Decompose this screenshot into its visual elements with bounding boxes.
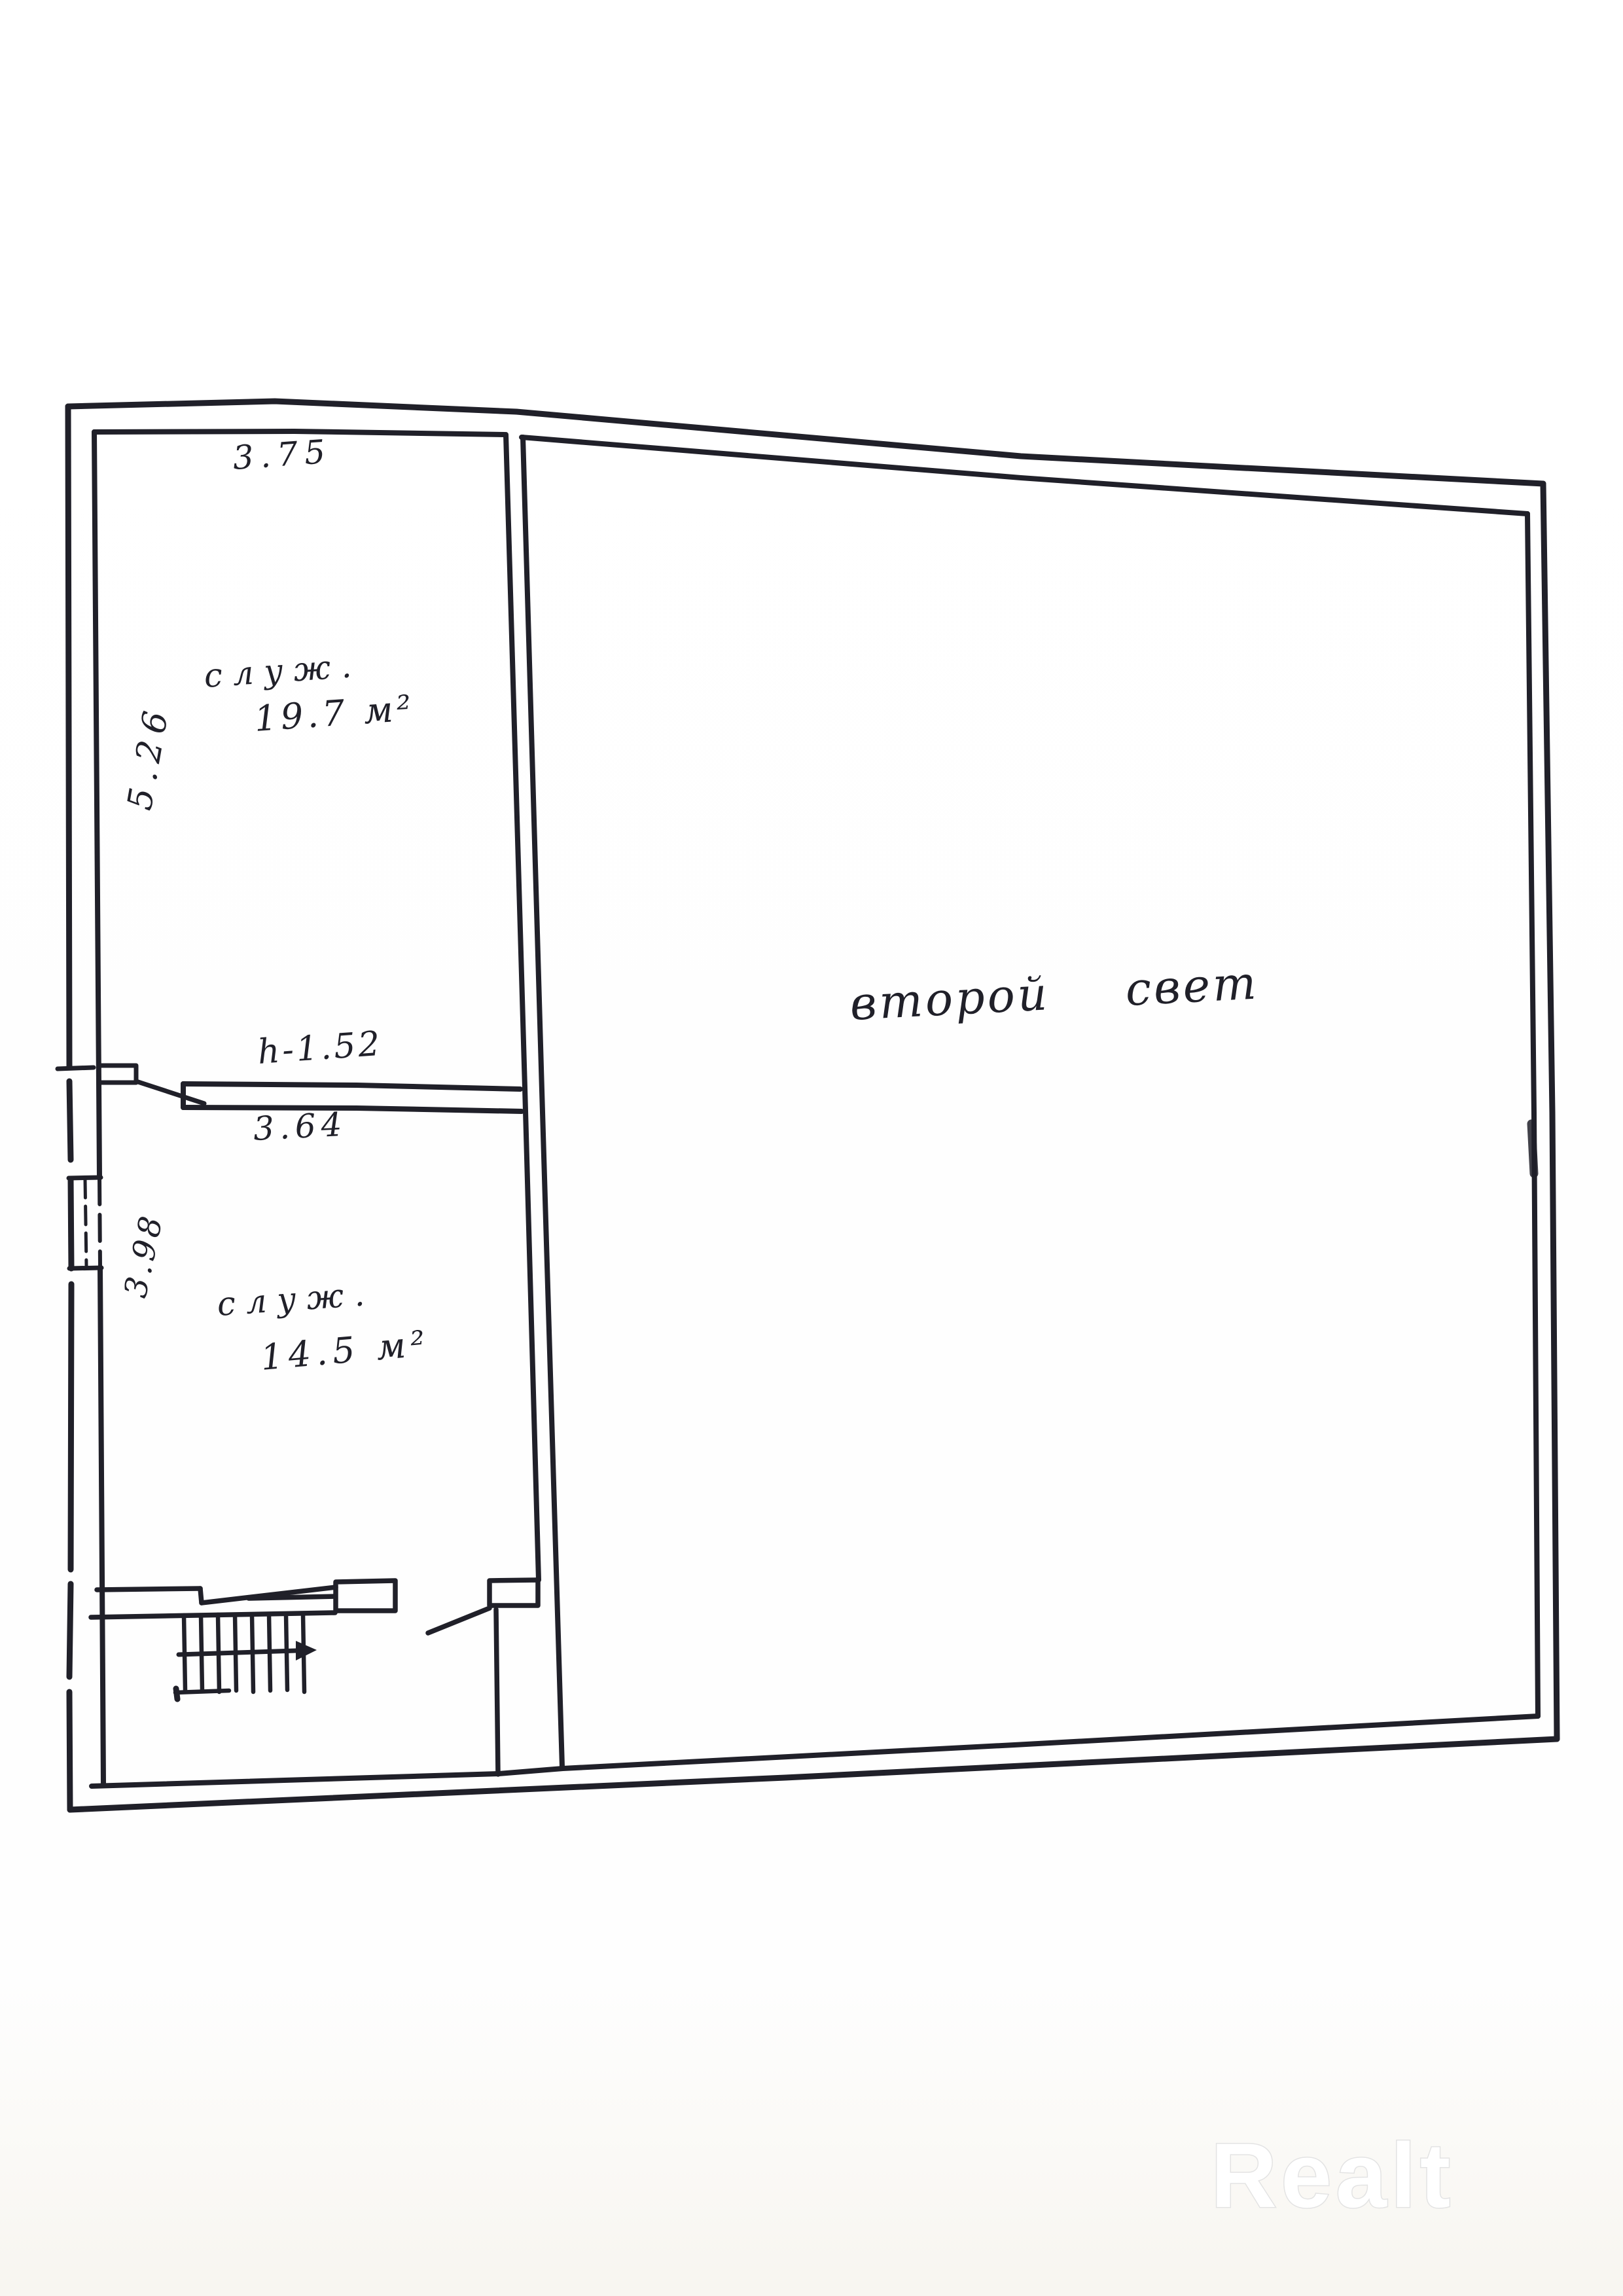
outer-top-left-room — [68, 401, 516, 412]
dim-lower-room-depth: 3.98 — [117, 1210, 171, 1301]
wall-below-door — [496, 1609, 498, 1774]
room-upper-area: 19.7 м² — [253, 687, 417, 740]
room-upper-name: служ. — [203, 646, 363, 695]
stair-wall-bottom — [91, 1613, 335, 1617]
outer-bottom-wall — [70, 1739, 1557, 1810]
arrow-head — [296, 1641, 317, 1660]
hall-name: второй свет — [849, 956, 1260, 1031]
staircase — [91, 1580, 538, 1774]
divider-top-line — [183, 1084, 520, 1089]
floor-plan-drawing: 3.75 5.26 служ. 19.7 м² h-1.52 3.64 3.98… — [0, 0, 1623, 2296]
dim-top-width: 3.75 — [232, 433, 333, 477]
dim-upper-room-depth: 5.26 — [120, 701, 178, 814]
partition-left-line — [506, 435, 539, 1580]
stair-wall-box — [336, 1581, 395, 1611]
dim-partition-width: 3.64 — [253, 1105, 348, 1148]
dimension-tick — [58, 1067, 94, 1069]
inner-left-wall-window — [99, 1178, 100, 1266]
door-lower-jamb — [490, 1580, 538, 1605]
outer-right-wall — [1543, 484, 1557, 1739]
door-upper-jamb — [99, 1066, 136, 1083]
stair-flight-edge-serif — [176, 1689, 177, 1699]
outer-left-wall — [68, 406, 71, 1810]
inner-right-wall — [1527, 514, 1538, 1716]
labels: 3.75 5.26 служ. 19.7 м² h-1.52 3.64 3.98… — [117, 433, 1260, 1378]
arrow-shaft — [179, 1651, 296, 1655]
realt-watermark: Realt — [1211, 2124, 1454, 2227]
right-wall-ink-blot — [1531, 1124, 1534, 1174]
stair-flight-edge — [175, 1691, 229, 1693]
window-mid-line — [85, 1179, 86, 1266]
divider-bottom-line — [183, 1107, 522, 1111]
height-note: h-1.52 — [257, 1024, 384, 1072]
stair-wall-mid-stroke — [249, 1596, 335, 1598]
room-lower-name: служ. — [216, 1274, 376, 1323]
room-divider-wall — [183, 1084, 522, 1111]
stair-wall-top-a — [97, 1588, 200, 1590]
door-lower-swing — [428, 1608, 490, 1633]
inner-left-wall-lower — [100, 1267, 103, 1784]
scanned-page: 3.75 5.26 служ. 19.7 м² h-1.52 3.64 3.98… — [0, 0, 1623, 2296]
room-lower-area: 14.5 м² — [259, 1323, 432, 1378]
partition-right-line — [523, 437, 562, 1767]
